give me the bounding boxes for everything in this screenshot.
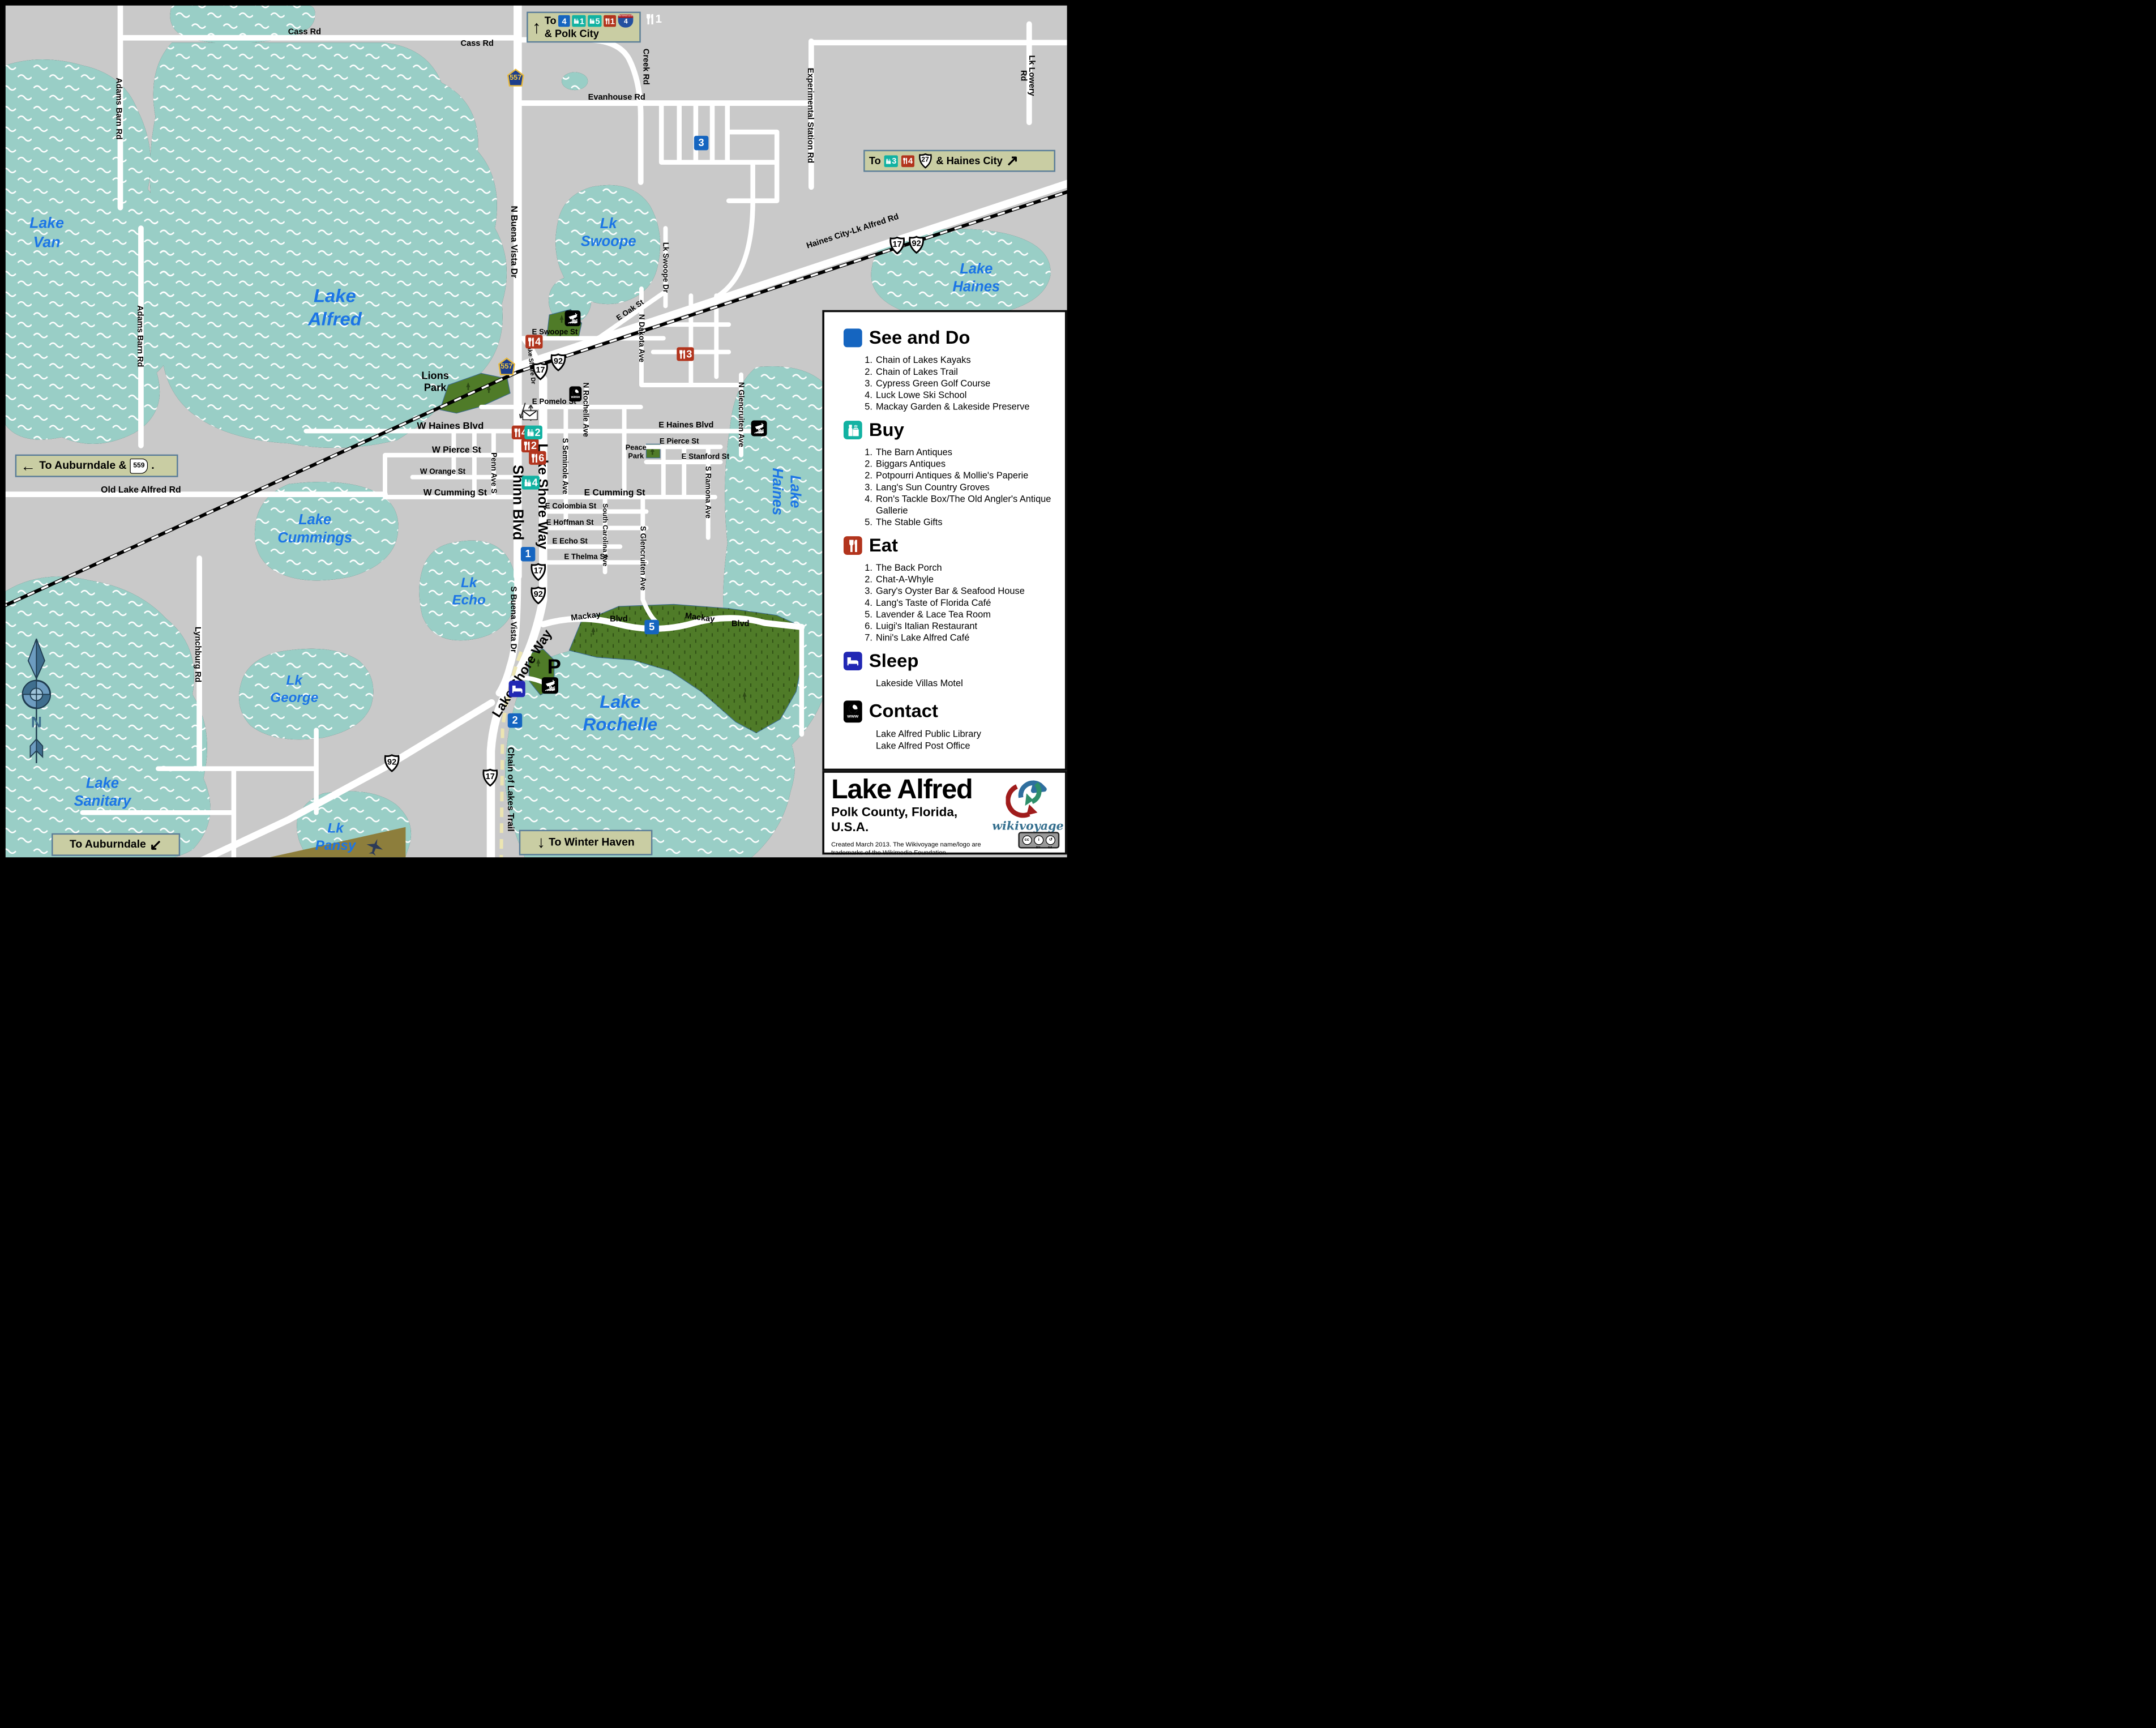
road-label: E Pierce St — [660, 438, 699, 446]
lake-label: Lake Van — [29, 213, 64, 251]
eat-marker: 2 — [521, 439, 539, 452]
road-label: E Cumming St — [584, 487, 645, 497]
us-92-shield: 92 — [908, 236, 926, 254]
fl-557-shield: 557 — [498, 357, 516, 375]
road-label: E Haines Blvd — [658, 421, 713, 429]
www-contact-icon: www — [569, 386, 581, 401]
legend-sleep-header: Sleep — [844, 651, 1058, 672]
fork-knife-icon — [679, 349, 686, 358]
sign-auburndale-sw: To Auburndale ↙ — [52, 833, 180, 856]
legend-item: 1.Chain of Lakes Kayaks — [859, 354, 1058, 366]
shopping-icon — [524, 478, 531, 487]
shopping-icon — [527, 429, 534, 437]
road-label: W Cumming St — [423, 487, 487, 497]
road-label: Lk Lowery Rd — [1020, 50, 1037, 101]
fork-knife-icon — [528, 337, 534, 347]
lake-label: Lake Rochelle — [583, 691, 657, 735]
compass-north-label: N — [31, 715, 42, 730]
sleep-icon — [509, 681, 525, 697]
us-27-shield: 27 — [918, 153, 933, 169]
eat-badge: 4 — [901, 155, 914, 167]
us-92-shield: 92 — [529, 587, 547, 605]
legend-item: 5.Mackay Garden & Lakeside Preserve — [859, 401, 1058, 413]
lake-label: Lk Echo — [452, 575, 485, 609]
buy-marker: 4 — [521, 476, 540, 489]
legend-item: 2.Chain of Lakes Trail — [859, 366, 1058, 378]
road-label: S Buena Vista Dr — [510, 587, 518, 653]
see-do-marker: 1 — [521, 547, 536, 562]
road-label: E Hoffman St — [546, 519, 594, 527]
road-label: Penn Ave S — [489, 452, 497, 494]
wikivoyage-logo-icon — [1006, 777, 1050, 819]
road-label: W Haines Blvd — [417, 421, 484, 430]
cc-sa-icon: ↺SA — [1046, 835, 1055, 845]
title-block: Lake Alfred Polk County, Florida, U.S.A.… — [822, 771, 1067, 854]
boat-ramp-icon — [542, 677, 558, 694]
legend-item: 4.Luck Lowe Ski School — [859, 389, 1058, 401]
buy-marker: 2 — [524, 426, 542, 439]
eat-badge: 1 — [604, 15, 617, 27]
road-label: Experimental Station Rd — [806, 68, 815, 163]
legend-item: 3.Gary's Oyster Bar & Seafood House — [859, 585, 1058, 597]
buy-badge: 5 — [588, 15, 601, 27]
see-do-icon — [844, 328, 862, 347]
down-left-arrow-icon: ↙ — [149, 836, 162, 854]
map-subtitle: Polk County, Florida, U.S.A. — [831, 805, 996, 835]
lake-label: Lake Haines — [952, 260, 1000, 297]
left-arrow-icon: ← — [20, 457, 36, 475]
lake-label: Lk Swoope — [581, 215, 636, 251]
us-17-shield: 17 — [481, 769, 499, 787]
shopping-icon — [885, 158, 891, 164]
road-label: Lynchburg Rd — [194, 627, 202, 682]
see-do-marker: 3 — [694, 136, 709, 151]
legend-item: 5.Lavender & Lace Tea Room — [859, 609, 1058, 621]
shopping-icon — [589, 18, 595, 24]
legend-eat-header: Eat — [844, 535, 1058, 557]
eat-marker: 4 — [525, 335, 543, 348]
us-17-shield: 17 — [529, 563, 547, 581]
screenshot-stage: Lake Van Lake Alfred Lk Swoope Lake Hain… — [0, 0, 1078, 864]
legend-item: 2.Chat-A-Whyle — [859, 574, 1058, 585]
parking-label: P — [547, 657, 561, 678]
sleep-icon — [844, 652, 862, 670]
road-label: Blvd — [610, 614, 628, 623]
legend-item: 3.Cypress Green Golf Course — [859, 378, 1058, 390]
road-label: W Pierce St — [432, 445, 481, 454]
us-92-shield: 92 — [383, 754, 401, 772]
eat-icon — [844, 536, 862, 555]
post-office-envelope-icon — [523, 410, 538, 420]
legend-item: 2.Potpourri Antiques & Mollie's Paperie — [859, 469, 1058, 481]
road-label: E Stanford St — [682, 454, 730, 461]
up-right-arrow-icon: ↗ — [1006, 152, 1019, 170]
road-label: Evanhouse Rd — [588, 93, 645, 101]
road-label: Lk Swoope Dr — [661, 242, 669, 293]
legend-see-do-header: See and Do — [844, 327, 1058, 349]
frame-right — [1067, 0, 1078, 864]
frame-top — [0, 0, 1078, 6]
map-document: Lake Van Lake Alfred Lk Swoope Lake Hain… — [0, 0, 1078, 864]
us-17-shield: 17 — [532, 362, 550, 380]
fork-knife-icon — [514, 428, 520, 437]
road-label: S Glencruiten Ave — [638, 526, 646, 591]
road-label: S Seminole Ave — [561, 438, 568, 494]
eat-marker: 3 — [677, 347, 694, 361]
legend-panel: See and Do 1.Chain of Lakes Kayaks 2.Cha… — [822, 310, 1067, 771]
cc-by-sa-badge: cc iBY ↺SA — [1018, 832, 1059, 848]
road-label: N Dakota Ave — [637, 314, 645, 362]
legend-item: 1.The Barn Antiques — [859, 446, 1058, 458]
see-do-marker: 5 — [644, 620, 659, 635]
sign-auburndale-559: ← To Auburndale & 559 . — [15, 455, 178, 477]
road-label: E Colombia St — [545, 503, 597, 511]
sign-haines-city: To 3 4 27 & Haines City ↗ — [863, 150, 1055, 172]
lake-label: Lk George — [270, 673, 318, 707]
legend-item: Lake Alfred Post Office — [876, 740, 1058, 752]
lake-label: Lake Cummings — [277, 511, 352, 548]
legend-item: Lakeside Villas Motel — [876, 677, 1058, 689]
road-label: South Carolina Ave — [601, 503, 608, 566]
road-label: N Buena Vista Dr — [510, 206, 519, 279]
see-do-badge: 4 — [558, 15, 570, 27]
www-contact-icon: www — [844, 700, 862, 722]
fork-knife-icon — [605, 18, 610, 24]
lake-label: Lake Sanitary — [74, 775, 131, 811]
buy-badge: 1 — [572, 15, 586, 27]
legend-item: 4.Ron's Tackle Box/The Old Angler's Anti… — [859, 493, 1058, 516]
road-label: N Rochelle Ave — [581, 383, 589, 437]
lake-label: Lake Alfred — [308, 285, 362, 331]
cc-by-icon: iBY — [1034, 835, 1043, 845]
legend-item: 7.Nini's Lake Alfred Café — [859, 632, 1058, 644]
legend-item: 1.The Back Porch — [859, 562, 1058, 574]
legend-buy-header: Buy — [844, 420, 1058, 441]
frame-bottom — [0, 857, 1078, 864]
interstate-4-shield: INTERSTATE4 — [618, 15, 634, 28]
road-label: W Orange St — [420, 468, 465, 476]
down-arrow-icon: ↓ — [537, 833, 545, 852]
buy-badge: 3 — [884, 155, 898, 167]
road-label: E Echo St — [552, 538, 587, 546]
road-label: Creek Rd — [642, 49, 651, 85]
legend-item: Lake Alfred Public Library — [876, 728, 1058, 739]
road-label: Adams Barn Rd — [136, 305, 144, 367]
boat-ramp-icon — [565, 310, 581, 326]
fl-557-shield: 557 — [507, 69, 525, 87]
road-label: Blvd — [731, 619, 750, 628]
lake-label: Lk Pansy — [315, 820, 356, 855]
road-label: N Glencruiten Ave — [737, 382, 745, 447]
fork-knife-icon — [531, 454, 538, 463]
road-label: Cass Rd — [288, 27, 321, 36]
map-title: Lake Alfred — [831, 776, 996, 803]
see-do-marker: 2 — [508, 713, 523, 728]
eat-marker: 6 — [529, 451, 546, 465]
sign-polk-city: ↑ To 4 1 5 1 INTERSTATE4 & Polk City — [527, 12, 641, 43]
legend-item: 6.Luigi's Italian Restaurant — [859, 620, 1058, 632]
legend-item: 4.Lang's Taste of Florida Café — [859, 597, 1058, 609]
park-label: Peace Park — [626, 444, 647, 460]
sign-winter-haven: ↓ To Winter Haven — [519, 830, 653, 856]
up-arrow-icon: ↑ — [532, 16, 541, 38]
eat-marker-ghost: 1 — [644, 12, 664, 27]
us-92-shield: 92 — [549, 353, 567, 371]
fork-knife-icon — [902, 157, 908, 164]
road-label: Cass Rd — [461, 39, 494, 48]
boat-ramp-icon — [751, 421, 767, 437]
legend-item: 3.Lang's Sun Country Groves — [859, 481, 1058, 493]
road-label: Old Lake Alfred Rd — [101, 485, 181, 494]
buy-icon — [844, 421, 862, 439]
cc-icon: cc — [1022, 835, 1032, 845]
road-label: S Ramona Ave — [704, 466, 712, 519]
fl-559-shield: 559 — [130, 458, 148, 473]
shopping-icon — [574, 18, 579, 24]
park-label: Lions Park — [421, 371, 449, 393]
legend-item: 2.Biggars Antiques — [859, 458, 1058, 470]
frame-left — [0, 0, 6, 864]
legend-contact-header: www Contact — [844, 700, 1058, 722]
legend-item: 5.The Stable Gifts — [859, 516, 1058, 528]
wikivoyage-brand: wikivoyage — [992, 819, 1060, 833]
us-17-shield: 17 — [888, 237, 906, 255]
road-label: Chain of Lakes Trail — [506, 747, 515, 831]
lake-label: Lake Haines — [768, 468, 804, 515]
road-label: Adams Barn Rd — [115, 78, 123, 139]
fork-knife-icon — [646, 14, 654, 24]
fork-knife-icon — [523, 441, 530, 450]
